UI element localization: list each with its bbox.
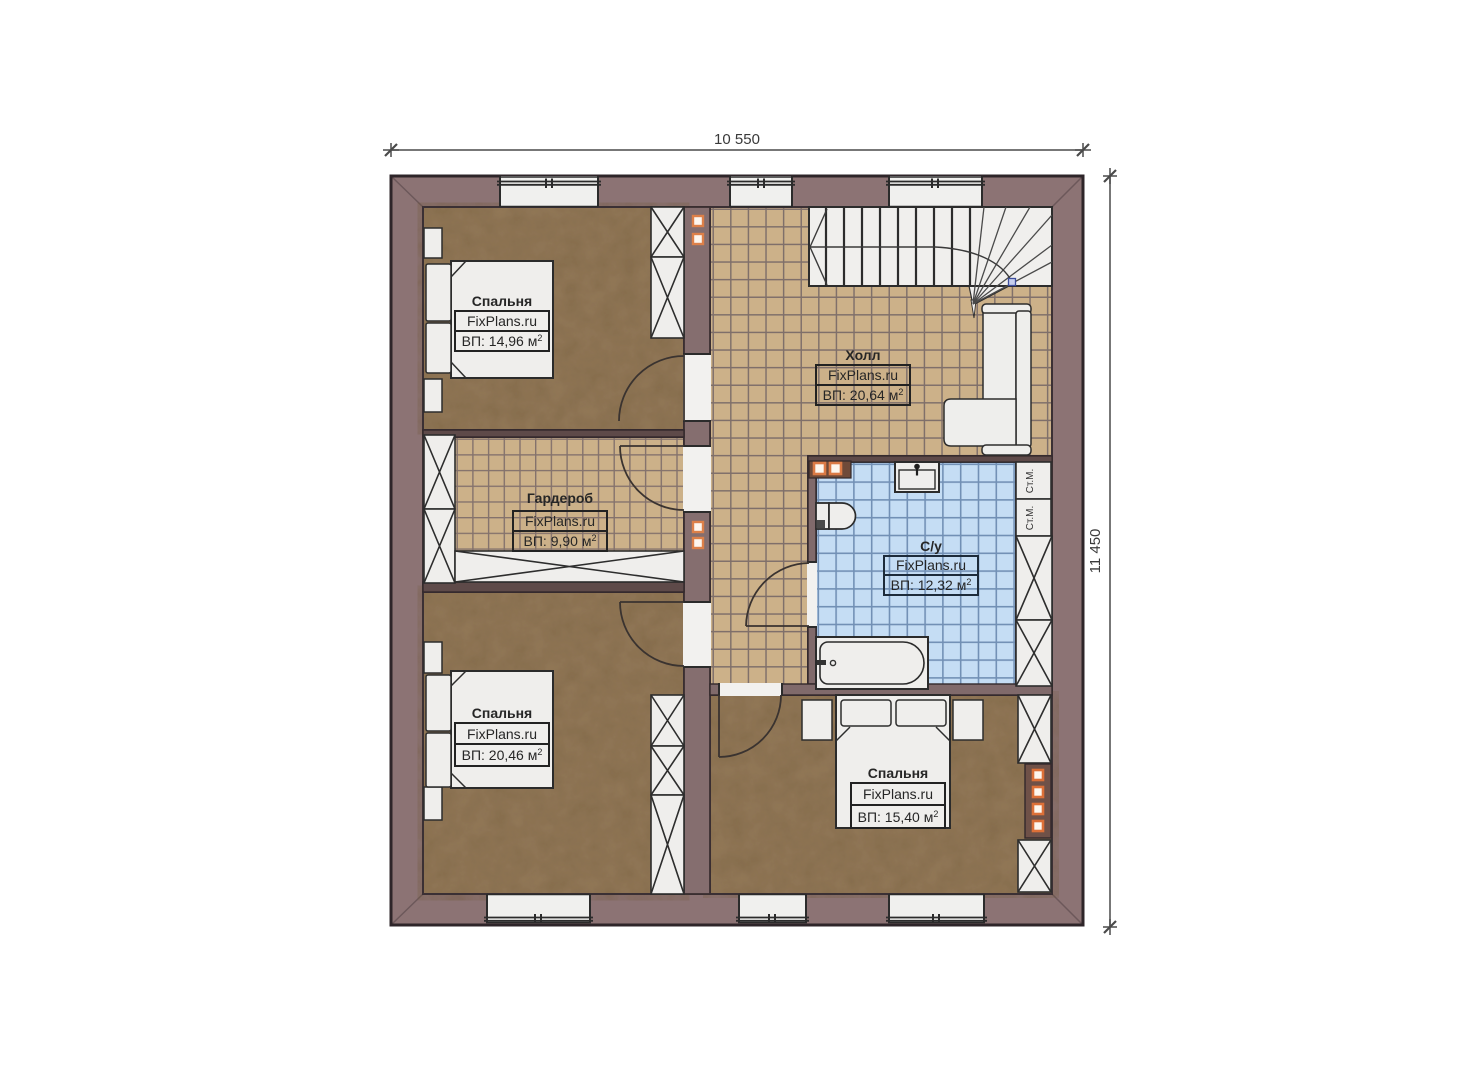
svg-text:Спальня: Спальня	[472, 705, 532, 721]
svg-text:С/у: С/у	[920, 538, 942, 554]
svg-text:FixPlans.ru: FixPlans.ru	[828, 367, 898, 383]
svg-text:ВП: 14,96 м2: ВП: 14,96 м2	[462, 333, 543, 349]
svg-text:Ст.М.: Ст.М.	[1025, 469, 1036, 494]
svg-text:ВП: 20,64 м2: ВП: 20,64 м2	[823, 387, 904, 403]
svg-text:Ст.М.: Ст.М.	[1025, 506, 1036, 531]
svg-text:Гардероб: Гардероб	[527, 490, 594, 506]
svg-text:FixPlans.ru: FixPlans.ru	[467, 726, 537, 742]
svg-text:ВП: 20,46 м2: ВП: 20,46 м2	[462, 747, 543, 763]
svg-text:FixPlans.ru: FixPlans.ru	[525, 513, 595, 529]
svg-text:11 450: 11 450	[1087, 529, 1104, 574]
svg-text:Спальня: Спальня	[868, 765, 928, 781]
svg-text:FixPlans.ru: FixPlans.ru	[863, 786, 933, 802]
svg-text:ВП: 12,32 м2: ВП: 12,32 м2	[891, 577, 972, 593]
svg-text:Холл: Холл	[845, 347, 880, 363]
svg-text:ВП: 15,40 м2: ВП: 15,40 м2	[858, 809, 939, 825]
svg-text:Спальня: Спальня	[472, 293, 532, 309]
svg-text:ВП: 9,90 м2: ВП: 9,90 м2	[524, 533, 597, 549]
svg-text:10 550: 10 550	[714, 131, 760, 148]
svg-text:FixPlans.ru: FixPlans.ru	[896, 557, 966, 573]
svg-text:FixPlans.ru: FixPlans.ru	[467, 313, 537, 329]
